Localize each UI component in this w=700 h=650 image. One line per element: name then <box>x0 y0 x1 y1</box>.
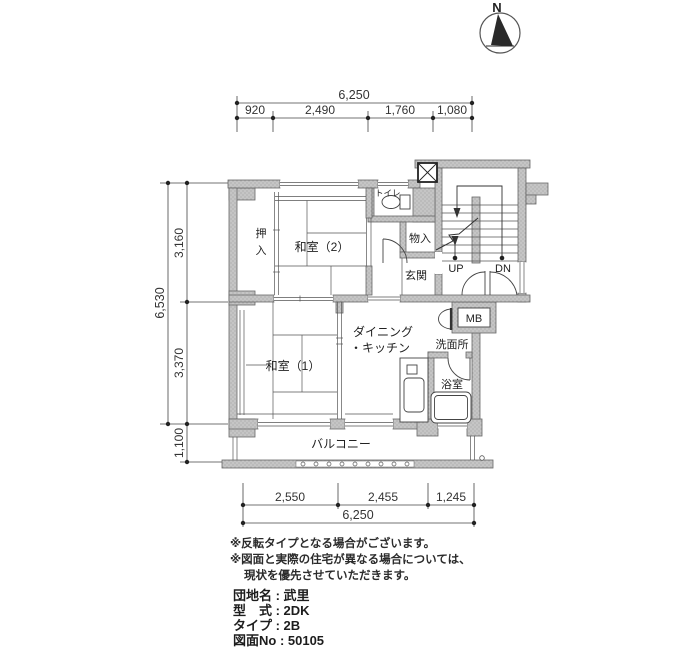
tatami-and-sliders <box>237 192 402 419</box>
north-arrow-icon <box>491 14 513 46</box>
label-dining-2: ・キッチン <box>350 341 410 355</box>
dim-bottom-total: 6,250 <box>342 508 373 522</box>
floor-plan-page: N 6,250 920 2,490 1,760 1,080 6,530 3,16… <box>0 0 700 650</box>
label-genkan: 玄関 <box>405 268 427 282</box>
kitchen-sink-icon <box>404 378 424 412</box>
dim-top-seg-1: 920 <box>245 103 265 117</box>
label-washitsu2: 和室（2） <box>295 239 350 254</box>
label-dining-1: ダイニング <box>353 324 413 339</box>
label-balcony: バルコニー <box>311 437 371 451</box>
note-line-1: ※反転タイプとなる場合がございます。 <box>230 536 435 550</box>
floor-plan-drawing: N 6,250 920 2,490 1,760 1,080 6,530 3,16… <box>0 0 700 650</box>
balcony-drain-icon <box>480 456 485 461</box>
dim-left-seg-3: 1,100 <box>172 428 186 458</box>
dim-left-seg-1: 3,160 <box>172 228 186 258</box>
label-yokushitsu: 浴室 <box>441 377 463 391</box>
info-drawing-number: 図面No : 50105 <box>233 633 324 648</box>
label-senmenjo: 洗面所 <box>436 338 469 351</box>
dim-bottom-seg-3: 1,245 <box>436 490 466 504</box>
dim-bottom-seg-2: 2,455 <box>368 490 398 504</box>
dim-top-seg-4: 1,080 <box>437 103 467 117</box>
toilet-tank-icon <box>400 195 410 209</box>
label-oshiire-2: 入 <box>256 245 267 257</box>
dim-top-seg-3: 1,760 <box>385 103 415 117</box>
dim-left-total: 6,530 <box>153 287 167 318</box>
note-line-3: 現状を優先させていただきます。 <box>244 568 415 582</box>
north-compass: N <box>480 0 520 53</box>
info-danchi-name: 団地名 : 武里 <box>233 588 310 603</box>
notes-block: ※反転タイプとなる場合がございます。 ※図面と実際の住宅が異なる場合については、… <box>230 536 471 582</box>
dimension-bottom: 2,550 2,455 1,245 6,250 <box>241 483 476 527</box>
info-type: 型 式 : 2DK <box>233 603 310 618</box>
note-line-2: ※図面と実際の住宅が異なる場合については、 <box>230 552 471 566</box>
label-dn: DN <box>495 263 511 275</box>
dim-top-seg-2: 2,490 <box>305 103 335 117</box>
bath-door <box>448 358 470 380</box>
label-toilet: トイレ <box>375 188 401 198</box>
dimension-left: 6,530 3,160 3,370 1,100 <box>153 181 228 464</box>
dimension-top: 6,250 920 2,490 1,760 1,080 <box>235 88 474 132</box>
dim-top-total: 6,250 <box>338 88 369 102</box>
label-mb: MB <box>466 313 483 325</box>
dim-left-seg-2: 3,370 <box>172 348 186 378</box>
entrance-door-left <box>462 272 485 295</box>
label-oshiire-1: 押 <box>256 226 267 240</box>
label-up: UP <box>448 263 463 275</box>
dim-bottom-seg-1: 2,550 <box>275 490 305 504</box>
info-block: 団地名 : 武里 型 式 : 2DK タイプ : 2B 図面No : 50105 <box>233 588 324 648</box>
entrance-door-right <box>490 272 517 295</box>
compass-north-label: N <box>492 0 501 15</box>
label-mononyu: 物入 <box>409 231 431 245</box>
label-washitsu1: 和室（1） <box>266 358 321 373</box>
info-layout-type: タイプ : 2B <box>233 618 300 633</box>
